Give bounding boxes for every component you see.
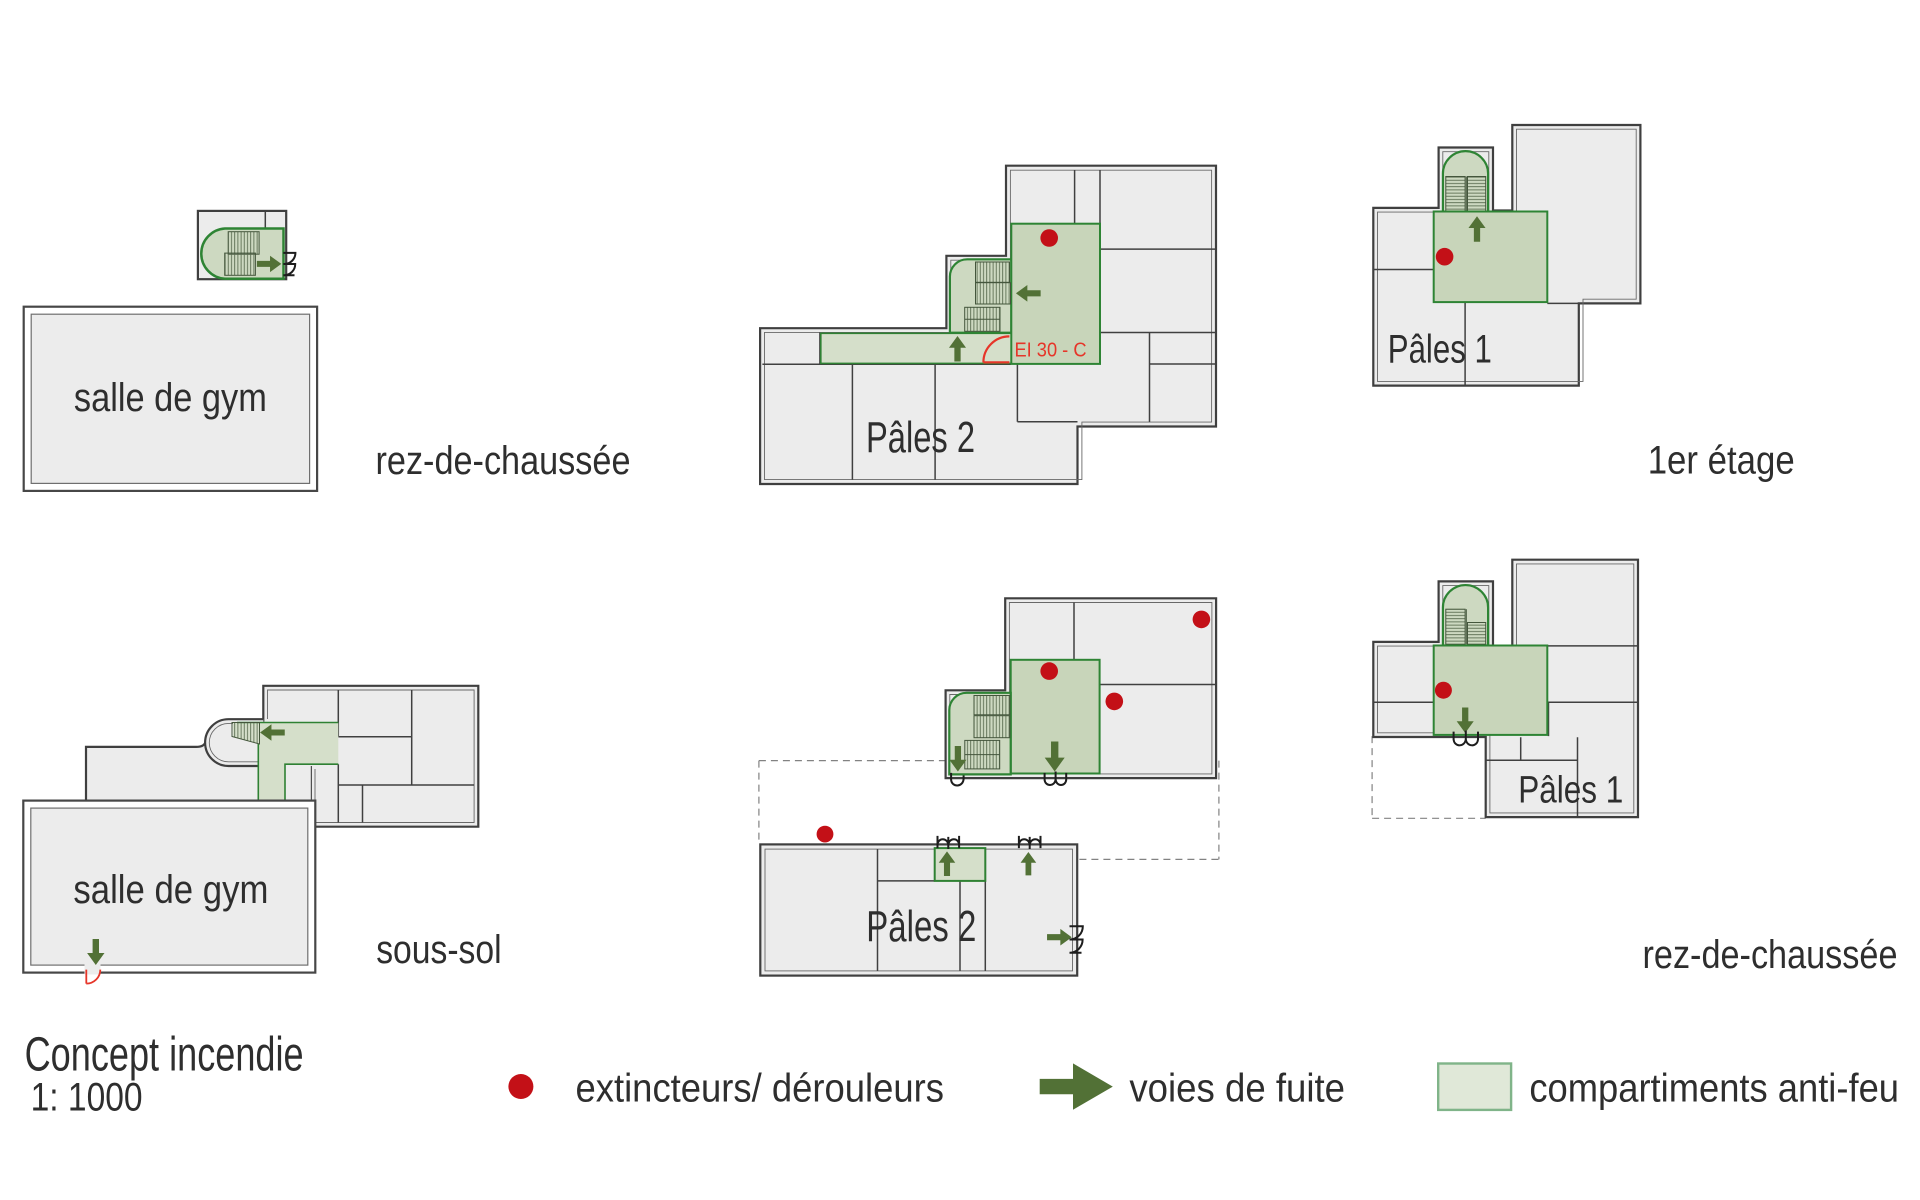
svg-text:1er étage: 1er étage (1648, 439, 1795, 483)
svg-text:Pâles 1: Pâles 1 (1388, 328, 1492, 372)
svg-text:voies de fuite: voies de fuite (1129, 1066, 1345, 1110)
svg-text:extincteurs/ dérouleurs: extincteurs/ dérouleurs (576, 1066, 945, 1110)
svg-text:salle de gym: salle de gym (73, 868, 268, 912)
svg-text:EI 30 - C: EI 30 - C (1015, 340, 1087, 362)
svg-text:salle de gym: salle de gym (74, 376, 267, 420)
svg-text:Pâles 2: Pâles 2 (866, 902, 976, 951)
svg-text:1: 1000: 1: 1000 (31, 1076, 143, 1120)
svg-text:Pâles 1: Pâles 1 (1518, 770, 1623, 812)
svg-text:rez-de-chaussée: rez-de-chaussée (376, 439, 631, 483)
svg-text:sous-sol: sous-sol (376, 928, 501, 972)
svg-text:Pâles 2: Pâles 2 (866, 413, 975, 462)
svg-text:compartiments anti-feu: compartiments anti-feu (1529, 1066, 1899, 1110)
svg-text:Concept incendie: Concept incendie (25, 1029, 304, 1082)
svg-text:rez-de-chaussée: rez-de-chaussée (1643, 933, 1898, 977)
